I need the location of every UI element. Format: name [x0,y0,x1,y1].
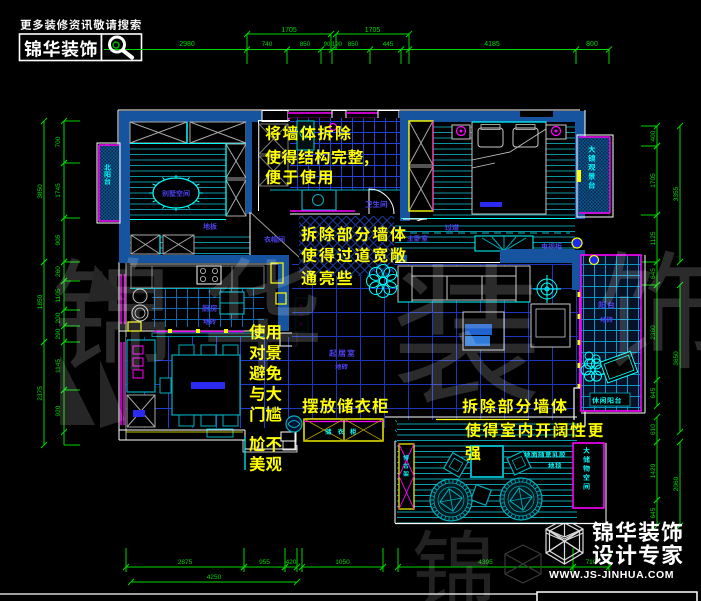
svg-text:4250: 4250 [207,574,222,581]
svg-text:4185: 4185 [484,41,500,48]
svg-text:850: 850 [300,41,311,48]
svg-text:1050: 1050 [335,559,350,566]
svg-text:90: 90 [324,42,331,48]
svg-text:850: 850 [348,41,359,48]
svg-text:3850: 3850 [37,184,44,199]
svg-text:WWW.JS-JINHUA.COM: WWW.JS-JINHUA.COM [549,569,674,581]
svg-text:445: 445 [383,41,394,48]
svg-text:3355: 3355 [673,186,680,201]
svg-text:1850: 1850 [37,294,44,309]
svg-text:700: 700 [55,136,62,147]
svg-text:905: 905 [55,234,62,245]
svg-text:2980: 2980 [179,41,195,48]
svg-text:1745: 1745 [55,183,62,198]
svg-text:1420: 1420 [650,463,657,478]
svg-text:190: 190 [332,42,343,48]
svg-text:800: 800 [586,41,598,48]
svg-text:645: 645 [650,387,657,398]
svg-text:400: 400 [650,130,657,141]
svg-text:2875: 2875 [178,559,193,566]
svg-text:645: 645 [650,507,657,518]
svg-text:1125: 1125 [650,231,657,245]
svg-text:420: 420 [286,559,297,566]
svg-text:1705: 1705 [365,27,381,34]
svg-text:260: 260 [55,266,62,277]
svg-text:3650: 3650 [673,351,680,366]
svg-text:740: 740 [262,41,273,48]
svg-text:955: 955 [259,559,270,566]
svg-text:290: 290 [55,328,62,339]
svg-text:2060: 2060 [673,476,680,491]
svg-text:2375: 2375 [37,386,44,401]
svg-text:610: 610 [650,424,657,435]
svg-text:1705: 1705 [281,27,297,34]
svg-text:1705: 1705 [650,173,657,188]
